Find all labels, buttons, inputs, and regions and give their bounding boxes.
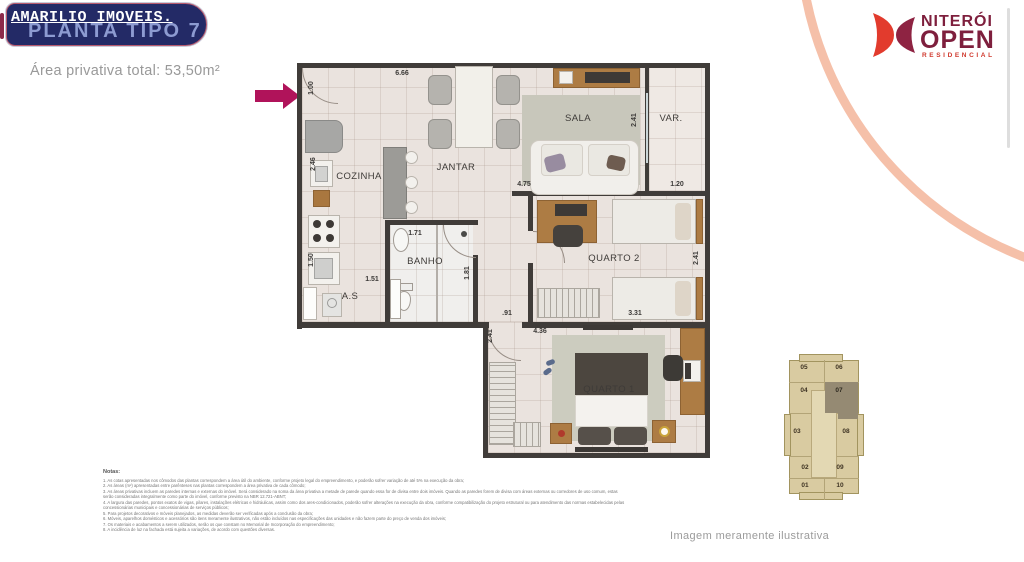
illustrative-disclaimer: Imagem meramente ilustrativa — [670, 530, 829, 542]
corner-border-line — [1007, 8, 1010, 148]
shower-head — [461, 231, 467, 237]
keyplan-unit: 04 — [796, 387, 812, 394]
keyplan-unit: 08 — [838, 428, 854, 435]
dim-kitchen-lower: 1.50 — [307, 248, 317, 272]
keyplan-unit: 02 — [797, 464, 813, 471]
dining-chair — [428, 75, 452, 105]
sliding-door-glass — [646, 93, 648, 163]
room-label-cozinha: COZINHA — [324, 171, 394, 182]
dining-chair — [496, 119, 520, 149]
laptop-screen — [685, 363, 691, 379]
room-label-varanda: VAR. — [636, 113, 706, 124]
keyplan-tab-bottom — [799, 492, 843, 500]
fridge — [305, 120, 343, 153]
dim-quarto2-width: 3.31 — [623, 309, 647, 319]
keyplan-unit: 03 — [789, 428, 805, 435]
room-label-banho: BANHO — [390, 256, 460, 267]
quarto1-dresser — [513, 422, 541, 447]
dining-table — [455, 66, 493, 148]
quarto2-wardrobe — [537, 288, 600, 318]
logo-subtitle: RESIDENCIAL — [922, 52, 995, 59]
shower-glass — [436, 225, 438, 322]
quarto1-headboard — [575, 447, 648, 452]
dim-top-width: 6.66 — [390, 69, 414, 79]
floorplan: COZINHA JANTAR SALA VAR. BANHO A.S QUART… — [297, 63, 710, 458]
dim-varanda-width: 1.20 — [665, 180, 689, 190]
stove-burner — [326, 234, 334, 242]
quarto2-monitor — [555, 204, 587, 216]
quarto1-pillow — [614, 427, 647, 445]
wall — [528, 263, 533, 322]
cutting-board — [313, 190, 330, 207]
keyplan: 05 06 04 07 03 08 02 09 01 10 — [784, 352, 864, 502]
keyplan-unit-highlighted: 07 — [831, 387, 847, 394]
keyplan-unit: 05 — [796, 364, 812, 371]
dim-quarto2-depth: 2.41 — [692, 246, 702, 270]
dim-banho-width: 1.71 — [403, 229, 427, 239]
room-label-quarto2: QUARTO 2 — [579, 253, 649, 264]
dim-sala-depth: 2.41 — [630, 108, 640, 132]
keyplan-unit: 09 — [832, 464, 848, 471]
entrance-arrow-icon — [255, 90, 284, 102]
keyplan-unit: 06 — [831, 364, 847, 371]
stove-burner — [313, 220, 321, 228]
dining-chair — [496, 75, 520, 105]
dim-quarto1-depth: 2.41 — [486, 324, 496, 348]
note-line: 8. A incidência de luz na fachada está s… — [103, 527, 625, 532]
kitchen-island — [383, 147, 407, 219]
stove-burner — [313, 234, 321, 242]
note-line: 3. As áreas privativas incluem as parede… — [103, 489, 625, 500]
stove — [308, 215, 340, 248]
keyplan-unit: 10 — [832, 482, 848, 489]
brand-name: AMARILIO IMOVEIS. — [11, 9, 173, 26]
brand-pill-edge — [0, 13, 4, 39]
quarto1-curtain — [583, 325, 633, 330]
quarto1-wardrobe — [489, 362, 516, 445]
room-label-area-servico: A.S — [315, 291, 385, 302]
quarto2-bed-top-headboard — [696, 199, 703, 244]
keyplan-unit: 01 — [797, 482, 813, 489]
wall — [528, 196, 533, 231]
dim-banho-depth: 1.81 — [463, 261, 473, 285]
dim-kitchen-depth: 2.46 — [309, 152, 319, 176]
quarto2-chair — [553, 225, 583, 247]
quarto2-bed-top-pillow — [675, 203, 691, 240]
stool — [405, 176, 418, 189]
keyplan-bulge-left — [784, 414, 791, 456]
niteroi-open-logo: NITERÓI OPEN RESIDENCIAL — [872, 12, 1002, 60]
quarto2-bed-bottom-pillow — [675, 281, 691, 316]
quarto1-pillow — [578, 427, 611, 445]
keyplan-unit-07-highlight — [838, 413, 858, 419]
quarto1-chair — [663, 355, 683, 381]
private-area-label: Área privativa total: 53,50m² — [30, 63, 220, 79]
dim-sala-width: 4.75 — [512, 180, 536, 190]
logo-mark-icon — [872, 12, 916, 58]
quarto2-bed-bottom-headboard — [696, 277, 703, 320]
wall — [483, 453, 710, 458]
stove-burner — [326, 220, 334, 228]
quarto1-bed-duvet — [575, 395, 648, 427]
banho-door-panel — [390, 279, 401, 319]
stool — [405, 151, 418, 164]
lamp — [659, 426, 670, 437]
keyplan-tab-top — [799, 354, 843, 362]
dim-entry-width: 1.00 — [307, 76, 317, 100]
notes-title: Notas: — [103, 469, 625, 475]
stool — [405, 201, 418, 214]
room-label-quarto1: QUARTO 1 — [574, 384, 644, 395]
tv — [585, 72, 630, 83]
notes-block: Notas: 1. As cotas apresentadas nos cômo… — [103, 469, 625, 533]
room-label-jantar: JANTAR — [421, 162, 491, 173]
dim-as-width: 1.51 — [360, 275, 384, 285]
room-label-sala: SALA — [543, 113, 613, 124]
dim-quarto1-width: 4.36 — [528, 327, 552, 337]
keyplan-bulge-right — [857, 414, 864, 456]
dining-chair — [428, 119, 452, 149]
note-line: 4. A largura das paredes, pontos exatos … — [103, 500, 625, 511]
wall — [473, 255, 478, 322]
dim-hall-width: .91 — [495, 309, 519, 319]
console-decor — [559, 71, 573, 84]
logo-type: OPEN — [920, 26, 995, 55]
wall — [297, 322, 489, 328]
floor-varanda — [649, 68, 705, 191]
flower-decor — [558, 430, 565, 437]
wall — [297, 63, 302, 329]
